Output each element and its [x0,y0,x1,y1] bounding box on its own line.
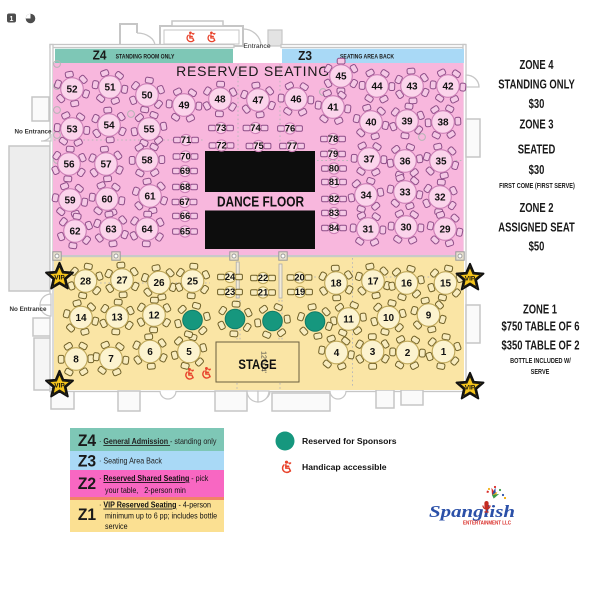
svg-text:76: 76 [285,124,296,135]
svg-text:57: 57 [100,159,112,170]
svg-text:3: 3 [370,347,376,358]
svg-text:$30: $30 [529,98,545,112]
svg-text:11: 11 [343,314,354,325]
svg-text:SEATING AREA BACK: SEATING AREA BACK [340,54,395,61]
svg-text:44: 44 [371,81,383,92]
svg-text:· VIP Reserved Seating - 4-per: · VIP Reserved Seating - 4-person [99,500,211,510]
svg-text:No Entrance: No Entrance [9,306,47,313]
svg-text:Spanglish: Spanglish [429,502,515,521]
svg-text:74: 74 [250,123,261,134]
svg-text:28: 28 [80,276,92,287]
svg-text:· Reserved Shared Seating - pi: · Reserved Shared Seating - pick [99,473,208,483]
svg-text:26: 26 [153,278,165,289]
svg-text:14: 14 [75,313,87,324]
svg-text:VIP: VIP [465,385,476,392]
svg-text:48: 48 [214,94,226,105]
svg-text:60: 60 [101,194,113,205]
svg-text:No Entrance: No Entrance [14,129,52,136]
svg-text:ZONE 1: ZONE 1 [523,303,557,317]
svg-text:ZONE 2: ZONE 2 [519,202,553,216]
svg-text:Z4: Z4 [78,432,96,450]
svg-text:· General Admission - standing: · General Admission - standing only [99,436,216,446]
svg-text:81: 81 [329,177,340,188]
svg-text:71: 71 [181,135,192,146]
svg-text:ZONE 4: ZONE 4 [519,59,554,73]
svg-text:24: 24 [225,272,236,283]
svg-text:33: 33 [399,187,411,198]
svg-text:46: 46 [290,94,302,105]
svg-text:ZONE 3: ZONE 3 [519,118,553,132]
svg-text:50: 50 [141,90,153,101]
svg-text:4: 4 [334,348,340,359]
svg-text:6: 6 [147,347,153,358]
svg-text:Z4: Z4 [93,48,107,62]
svg-text:78: 78 [328,134,339,145]
svg-text:Z3: Z3 [78,452,96,470]
svg-text:Handicap accessible: Handicap accessible [302,462,387,472]
svg-text:54: 54 [103,120,115,131]
svg-text:20: 20 [294,273,305,284]
svg-text:75: 75 [253,141,264,152]
svg-text:56: 56 [63,159,75,170]
svg-text:53: 53 [66,124,78,135]
svg-text:55: 55 [143,124,155,135]
svg-text:64: 64 [141,224,153,235]
svg-text:$750 TABLE OF 6: $750 TABLE OF 6 [502,320,580,334]
svg-text:22: 22 [258,273,269,284]
svg-text:21: 21 [258,288,269,299]
svg-text:38: 38 [437,117,449,128]
svg-text:9: 9 [426,310,432,321]
svg-text:40: 40 [365,117,377,128]
svg-text:Z2: Z2 [78,475,96,493]
svg-text:STANDING ROOM ONLY: STANDING ROOM ONLY [116,54,175,61]
svg-text:FIRST COME (FIRST SERVE): FIRST COME (FIRST SERVE) [499,182,575,190]
svg-text:Z1: Z1 [78,506,96,524]
svg-text:66: 66 [180,211,191,222]
svg-text:19: 19 [295,287,306,298]
svg-text:62: 62 [69,226,81,237]
svg-text:BOTTLE INCLUDED W/: BOTTLE INCLUDED W/ [510,357,571,365]
svg-text:65: 65 [180,227,191,238]
svg-text:7: 7 [108,354,114,365]
svg-text:77: 77 [287,141,298,152]
svg-text:45: 45 [335,71,347,82]
svg-text:8: 8 [73,354,79,365]
svg-text:30: 30 [400,222,412,233]
svg-text:SEATED: SEATED [518,143,556,157]
svg-text:Entrance: Entrance [243,43,270,50]
svg-text:16: 16 [401,278,413,289]
svg-text:RESERVED SEATING: RESERVED SEATING [176,63,330,79]
svg-text:your table, 2-person min: your table, 2-person min [105,485,186,495]
svg-text:34: 34 [360,190,372,201]
svg-text:27: 27 [116,275,128,286]
svg-text:ASSIGNED SEAT: ASSIGNED SEAT [498,221,575,235]
svg-text:15: 15 [440,278,452,289]
svg-text:minimum up to 6 pp; includes b: minimum up to 6 pp; includes bottle [105,511,218,521]
svg-text:SERVE: SERVE [531,368,550,376]
svg-text:42: 42 [442,81,454,92]
svg-text:$30: $30 [529,164,545,178]
svg-text:STAGE: STAGE [238,356,277,373]
svg-text:10: 10 [383,313,395,324]
svg-text:35: 35 [435,156,447,167]
svg-text:58: 58 [141,155,153,166]
svg-text:63: 63 [105,224,117,235]
svg-text:49: 49 [178,100,190,111]
svg-text:73: 73 [216,123,227,134]
svg-text:41: 41 [327,102,339,113]
svg-text:39: 39 [401,116,413,127]
svg-text:1: 1 [10,16,14,23]
svg-text:29: 29 [439,224,451,235]
svg-text:$50: $50 [529,240,545,254]
svg-text:68: 68 [180,182,191,193]
svg-text:service: service [105,521,128,531]
svg-text:67: 67 [179,197,190,208]
svg-text:83: 83 [329,208,340,219]
svg-text:79: 79 [328,149,339,160]
svg-text:VIP: VIP [54,275,65,282]
svg-text:12: 12 [148,310,160,321]
svg-text:82: 82 [329,194,340,205]
svg-text:VIP: VIP [465,276,476,283]
svg-text:2: 2 [405,348,411,359]
svg-text:59: 59 [64,195,76,206]
svg-text:1: 1 [441,347,447,358]
svg-text:Z3: Z3 [298,49,312,63]
svg-text:37: 37 [363,154,375,165]
svg-text:51: 51 [104,82,116,93]
svg-text:32: 32 [434,192,446,203]
svg-text:52: 52 [66,84,78,95]
svg-text:84: 84 [329,223,340,234]
svg-text:DANCE FLOOR: DANCE FLOOR [217,193,305,209]
svg-text:$350 TABLE OF 2: $350 TABLE OF 2 [502,339,580,353]
svg-text:STANDING ONLY: STANDING ONLY [498,78,575,92]
svg-text:Reserved for Sponsors: Reserved for Sponsors [302,436,397,446]
svg-text:ENTERTAINMENT LLC: ENTERTAINMENT LLC [463,521,511,527]
svg-text:18: 18 [330,278,342,289]
svg-text:· Seating Area Back: · Seating Area Back [99,456,162,466]
svg-text:25: 25 [187,276,199,287]
svg-text:70: 70 [180,152,191,163]
svg-text:5: 5 [186,347,192,358]
svg-text:61: 61 [144,191,156,202]
svg-text:13: 13 [111,312,123,323]
svg-text:23: 23 [225,287,236,298]
svg-text:31: 31 [362,224,374,235]
svg-text:69: 69 [180,166,191,177]
svg-text:80: 80 [329,164,340,175]
svg-text:43: 43 [406,81,418,92]
svg-text:47: 47 [252,95,264,106]
svg-text:36: 36 [399,156,411,167]
svg-text:VIP: VIP [54,383,65,390]
svg-text:72: 72 [216,141,227,152]
svg-text:17: 17 [367,276,379,287]
